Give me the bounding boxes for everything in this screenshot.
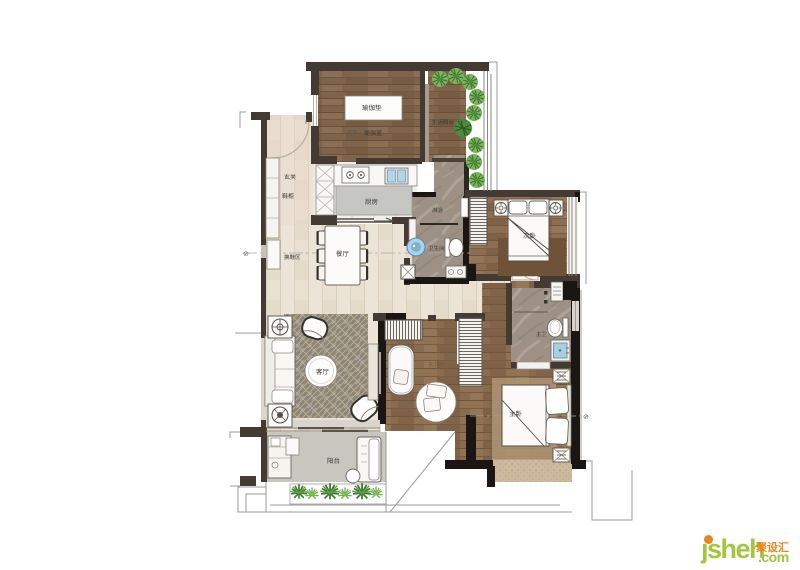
svg-text:生活阳台: 生活阳台 [432, 119, 455, 126]
svg-text:品茶: 品茶 [347, 129, 357, 136]
svg-text:鞋柜: 鞋柜 [282, 192, 294, 200]
svg-text:⊘: ⊘ [243, 251, 249, 258]
svg-text:主卧: 主卧 [509, 410, 523, 418]
svg-text:瑜伽垫: 瑜伽垫 [362, 104, 382, 112]
svg-text:换鞋区: 换鞋区 [284, 254, 301, 261]
svg-text:聚设汇: 聚设汇 [755, 540, 789, 554]
svg-text:瑜伽室: 瑜伽室 [364, 129, 382, 137]
svg-text:次卧: 次卧 [523, 232, 537, 240]
svg-text:⊘: ⊘ [583, 414, 589, 421]
svg-text:主卫: 主卫 [536, 331, 548, 338]
svg-text:厨房: 厨房 [365, 198, 378, 206]
svg-text:阳台: 阳台 [327, 457, 341, 465]
svg-text:主卫间: 主卫间 [428, 361, 443, 368]
svg-text:卫生间: 卫生间 [428, 245, 445, 252]
svg-text:客厅: 客厅 [316, 368, 330, 376]
svg-text:玄关: 玄关 [284, 173, 296, 181]
svg-text:淋浴: 淋浴 [432, 207, 444, 214]
svg-text:餐厅: 餐厅 [336, 250, 350, 258]
